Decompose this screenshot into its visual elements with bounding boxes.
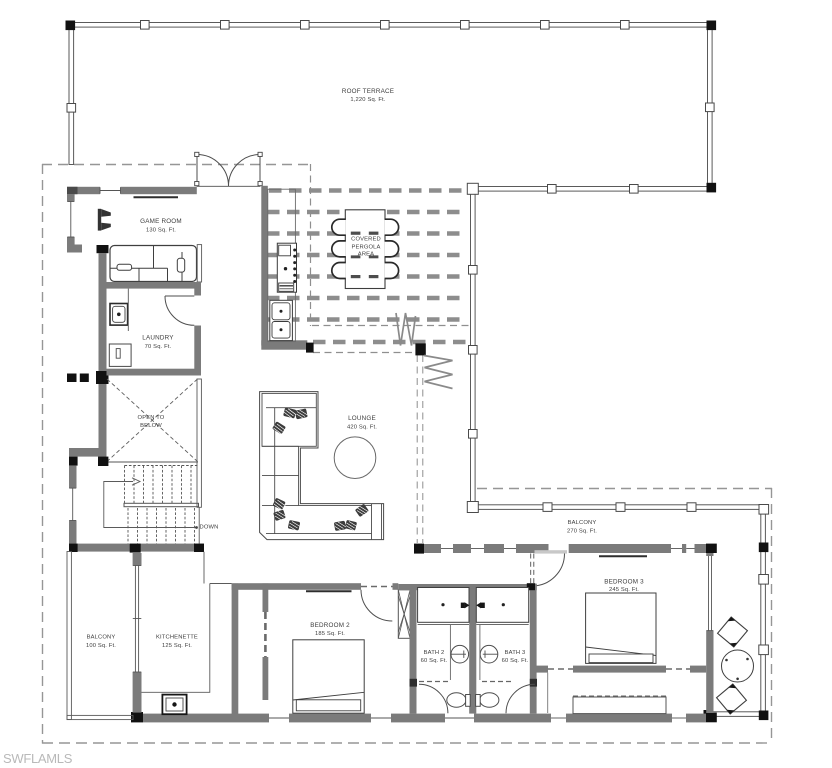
svg-text:AREA: AREA (358, 251, 374, 257)
svg-text:70 Sq. Ft.: 70 Sq. Ft. (145, 344, 172, 350)
svg-text:BATH 3: BATH 3 (505, 650, 526, 656)
svg-text:KITCHENETTE: KITCHENETTE (156, 635, 198, 641)
svg-text:GAME ROOM: GAME ROOM (140, 218, 182, 225)
svg-text:SWFLAMLS: SWFLAMLS (3, 751, 73, 766)
svg-text:LOUNGE: LOUNGE (348, 415, 376, 422)
svg-text:1,220 Sq. Ft.: 1,220 Sq. Ft. (350, 97, 385, 103)
svg-text:PERGOLA: PERGOLA (351, 245, 380, 251)
svg-text:COVERED: COVERED (351, 237, 381, 243)
svg-text:ROOF TERRACE: ROOF TERRACE (342, 88, 394, 95)
svg-text:270 Sq. Ft.: 270 Sq. Ft. (567, 529, 597, 535)
svg-text:BATH 2: BATH 2 (424, 650, 445, 656)
svg-text:130 Sq. Ft.: 130 Sq. Ft. (146, 228, 176, 234)
svg-text:OPEN TO: OPEN TO (138, 415, 165, 421)
svg-text:245 Sq. Ft.: 245 Sq. Ft. (609, 587, 639, 593)
svg-text:100 Sq. Ft.: 100 Sq. Ft. (86, 643, 116, 649)
svg-text:60 Sq. Ft.: 60 Sq. Ft. (421, 658, 448, 664)
svg-text:125 Sq. Ft.: 125 Sq. Ft. (162, 643, 192, 649)
svg-text:420 Sq. Ft.: 420 Sq. Ft. (347, 425, 377, 431)
svg-text:BEDROOM 2: BEDROOM 2 (310, 622, 350, 629)
svg-text:60 Sq. Ft.: 60 Sq. Ft. (502, 658, 529, 664)
svg-text:DOWN: DOWN (200, 525, 219, 531)
svg-text:BALCONY: BALCONY (87, 635, 116, 641)
svg-text:BEDROOM 3: BEDROOM 3 (604, 579, 644, 586)
svg-text:LAUNDRY: LAUNDRY (142, 335, 174, 342)
svg-text:185 Sq. Ft.: 185 Sq. Ft. (315, 631, 345, 637)
svg-text:BALCONY: BALCONY (568, 520, 597, 526)
svg-text:BELOW: BELOW (140, 423, 162, 429)
